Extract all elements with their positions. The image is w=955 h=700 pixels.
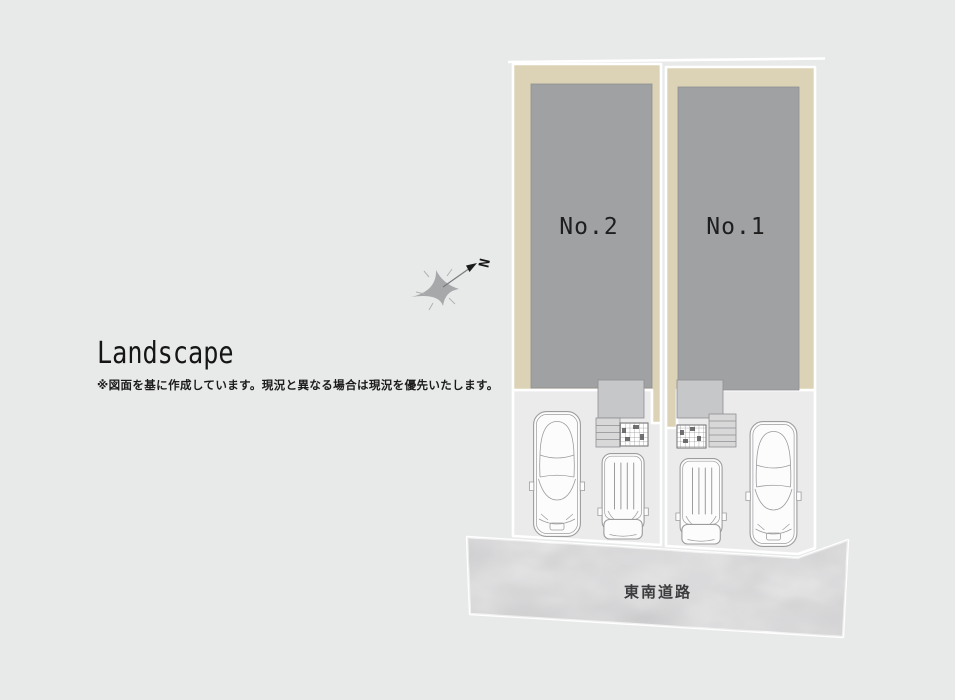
page-title: Landscape [97, 336, 234, 371]
disclaimer-text: ※図面を基に作成しています。現況と異なる場合は現況を優先いたします。 [97, 377, 499, 393]
lot-label-no2: No.2 [559, 214, 618, 240]
entrance-no2 [596, 380, 648, 447]
car-van-lot1 [676, 459, 726, 544]
porch-no1 [677, 380, 723, 418]
car-sedan-lot1 [746, 422, 801, 547]
lot-label-no1: No.1 [706, 214, 765, 240]
road-label: 東南道路 [624, 583, 692, 601]
steps-no1 [709, 414, 736, 447]
porch-no2 [598, 380, 644, 418]
car-van-lot2 [598, 454, 648, 539]
car-sedan-lot2 [529, 412, 584, 537]
site-plan-canvas: N No.2 No.1 東南道路 Landscape ※図面を基に作成しています… [0, 0, 955, 700]
